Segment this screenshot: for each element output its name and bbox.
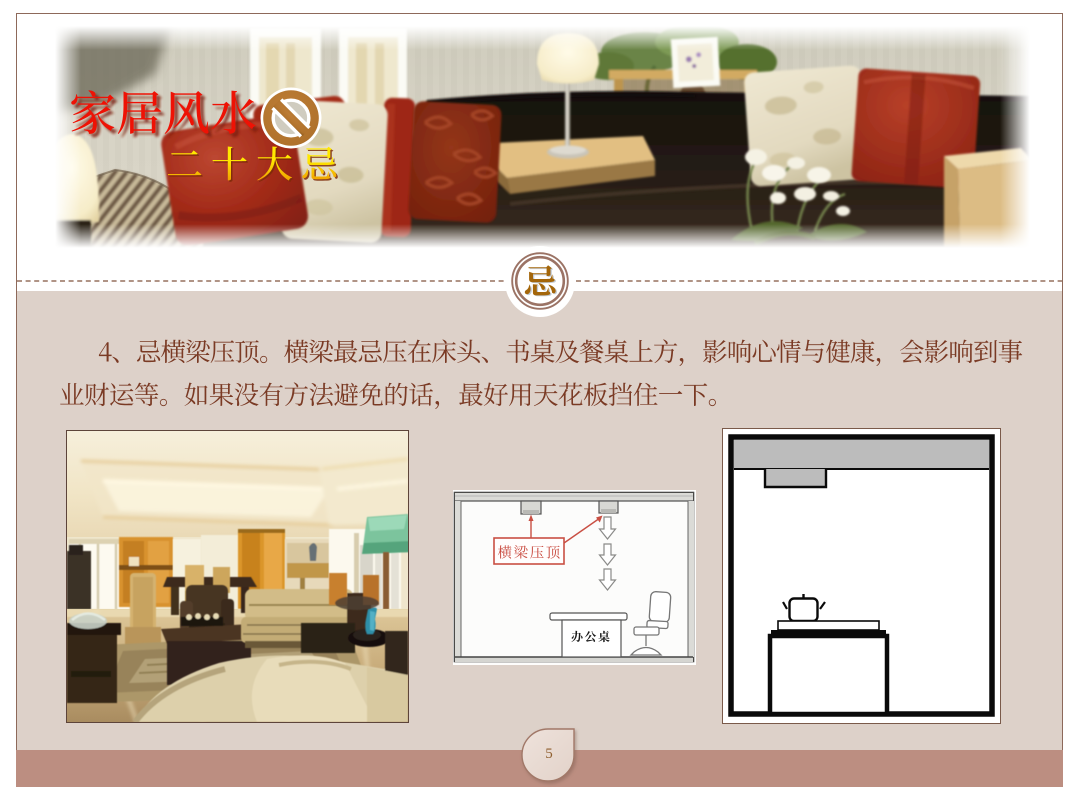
svg-text:5: 5	[545, 746, 553, 762]
